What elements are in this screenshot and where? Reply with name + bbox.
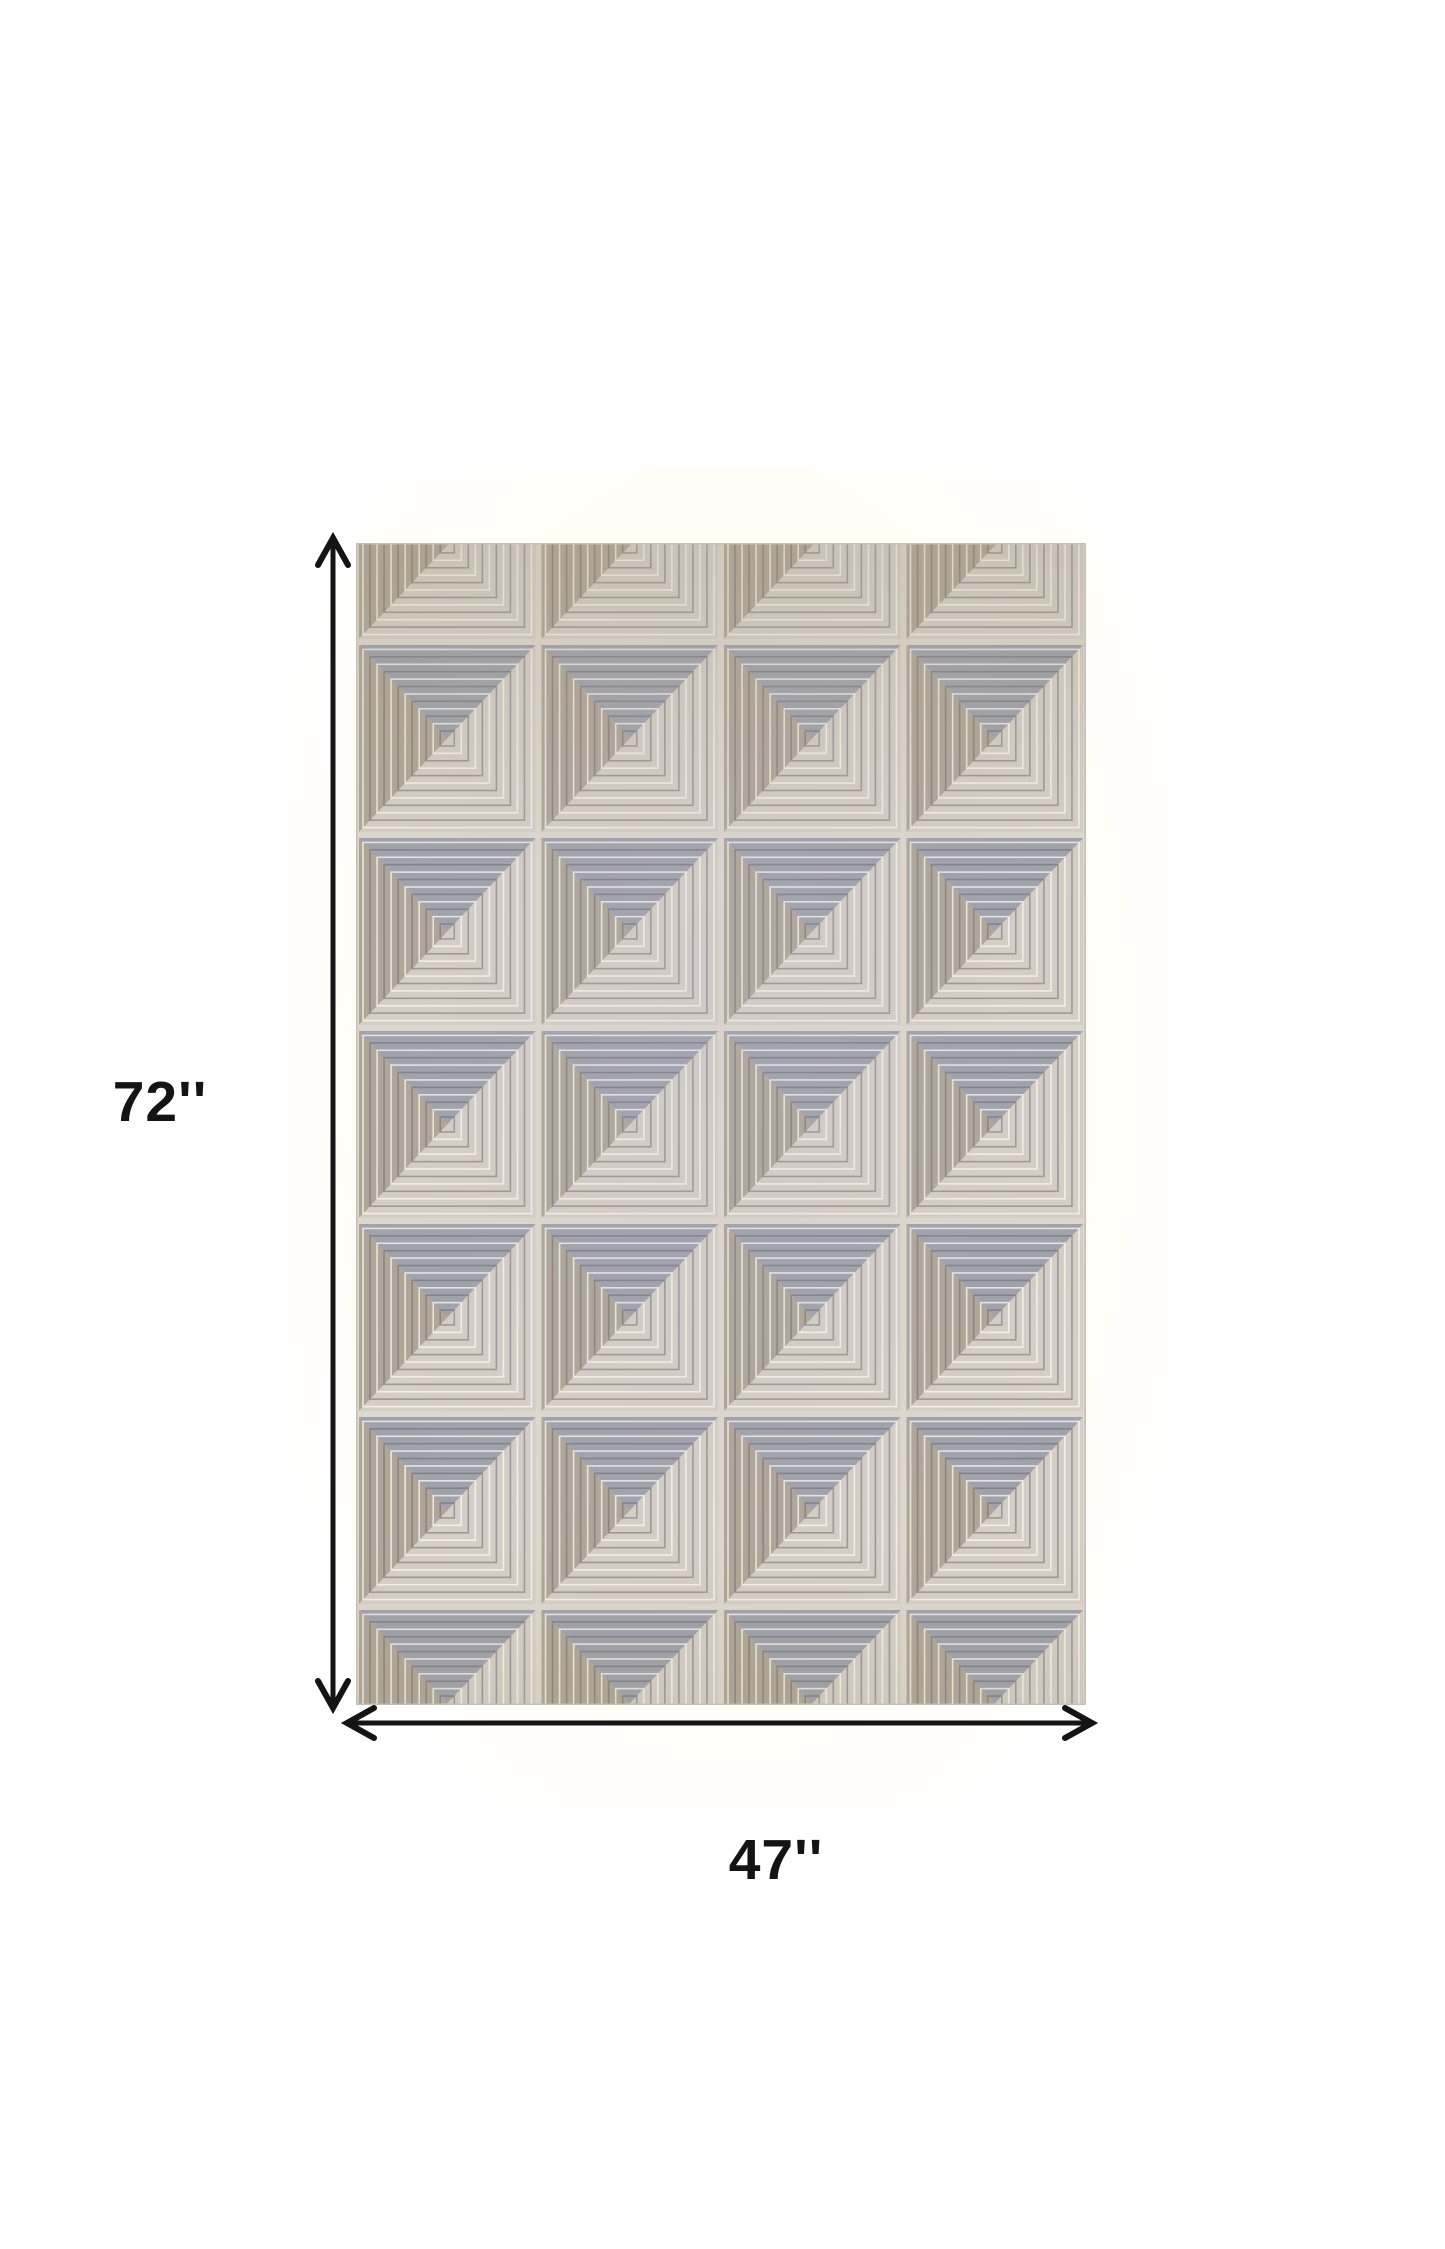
width-dimension-label: 47'' xyxy=(706,1832,846,1889)
width-dimension-arrow xyxy=(337,1700,1103,1746)
height-dimension-arrow xyxy=(310,528,356,1728)
product-dimension-diagram: 72'' 47'' xyxy=(0,0,1445,2249)
rug-product-image xyxy=(356,543,1086,1705)
height-dimension-label: 72'' xyxy=(90,1074,230,1131)
